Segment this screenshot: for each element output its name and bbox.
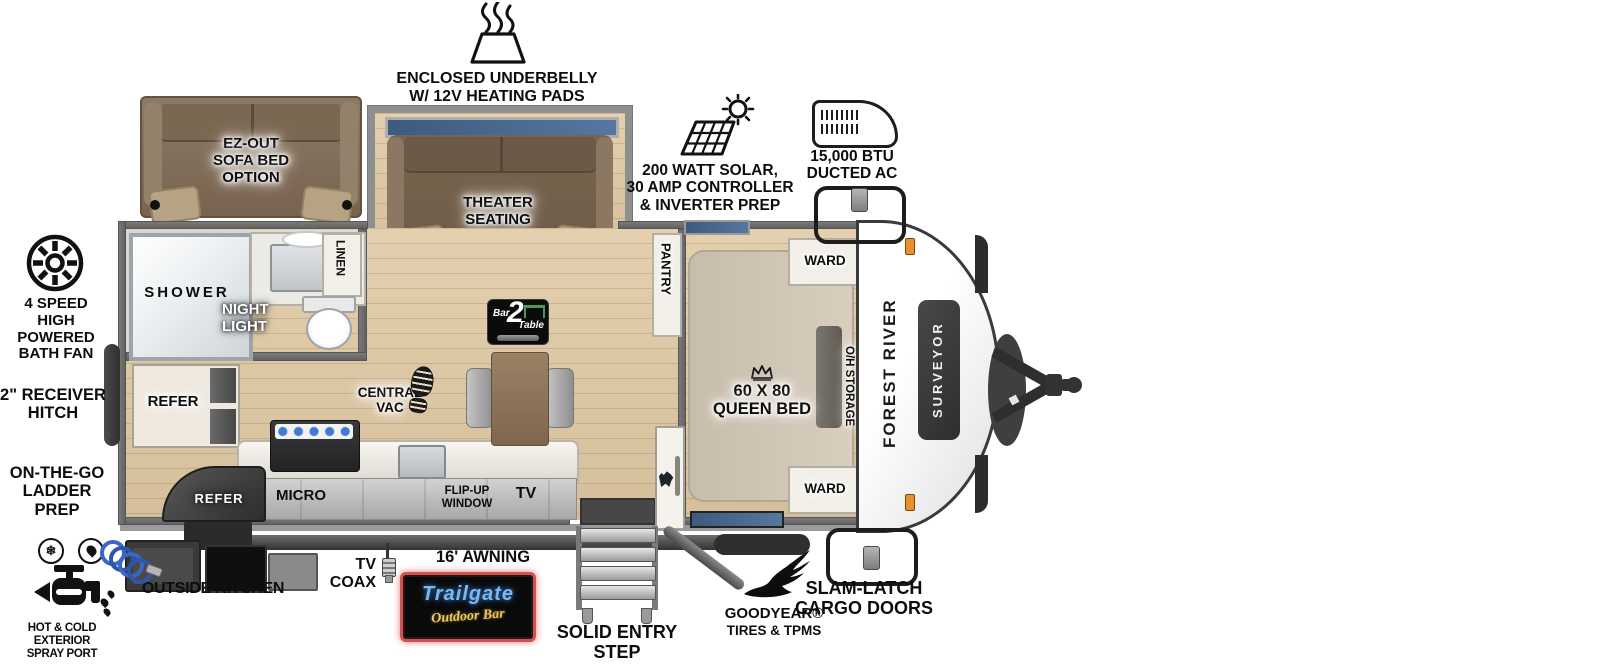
ac-unit-icon (812, 100, 898, 148)
coax-tip (385, 575, 393, 583)
refrigerator: REFER (132, 364, 240, 448)
goodyear-callout: GOODYEAR® TIRES & TPMS (712, 606, 836, 638)
sofa-leg-left (150, 200, 160, 210)
cargo-door-top (814, 186, 906, 244)
entry-door-handle (675, 456, 680, 496)
entry-landing (580, 498, 656, 525)
bath-fan-callout: 4 SPEED HIGH POWERED BATH FAN (0, 296, 112, 363)
refer-exterior-label: REFER (186, 492, 252, 507)
theater-label: THEATER SEATING (435, 195, 561, 229)
tv-label: TV (506, 485, 546, 503)
water-line (56, 589, 82, 595)
queen-bed-label: 60 X 80 QUEEN BED (702, 382, 822, 419)
cold-circle: ❄ (38, 538, 64, 564)
solar-callout: 200 WATT SOLAR, 30 AMP CONTROLLER & INVE… (620, 162, 800, 214)
ladder-prep-callout: ON-THE-GO LADDER PREP (0, 464, 114, 519)
receiver-hitch-callout: 2" RECEIVER HITCH (0, 386, 106, 423)
theater-back-divider (500, 137, 503, 173)
dinette-chair-right (546, 368, 574, 428)
faucet-funnel (34, 582, 50, 602)
cargo-door-bottom-latch (863, 546, 880, 570)
sofa-leg-right (342, 200, 352, 210)
oh-storage-label: O/H STORAGE (842, 324, 855, 448)
a-frame-hitch (990, 344, 1082, 426)
wall-top-left (118, 221, 368, 229)
bedroom-window-top (684, 220, 750, 235)
ac-vent-row-2 (821, 124, 859, 134)
entry-step-callout: SOLID ENTRY STEP (550, 622, 684, 662)
cap-trim-bottom (975, 455, 988, 513)
coax-cable (386, 543, 389, 559)
night-light-label: NIGHT LIGHT (222, 302, 304, 336)
bear-decal (659, 470, 674, 487)
flip-up-window-label: FLIP-UP WINDOW (430, 485, 504, 511)
forest-river-text: FOREST RIVER (880, 290, 899, 456)
sofa-bed-slideout: EZ-OUT SOFA BED OPTION (140, 96, 362, 218)
spray-port-callout: HOT & COLD EXTERIOR SPRAY PORT (6, 622, 118, 661)
trailgate-name: Trailgate (403, 583, 533, 606)
pantry-cabinet: PANTRY (652, 233, 682, 337)
entry-door (655, 426, 685, 530)
shower: SHOWER (129, 233, 253, 361)
step-tread-4 (580, 585, 656, 600)
bar2table-table: Table (518, 320, 544, 331)
faucet-body (52, 578, 86, 605)
shower-label: SHOWER (137, 285, 237, 302)
dinette-chair-left (466, 368, 494, 428)
linen-cabinet: LINEN (322, 233, 362, 297)
kitchen-sink (398, 445, 446, 479)
underbelly-callout: ENCLOSED UNDERBELLY W/ 12V HEATING PADS (372, 70, 622, 106)
drip-2 (106, 589, 116, 599)
drip-1 (99, 597, 110, 608)
bath-fan-icon (26, 234, 84, 292)
marker-light-bottom (905, 494, 915, 511)
tv-coax-callout: TV COAX (314, 556, 376, 592)
step-tread-3 (580, 566, 656, 581)
micro-label: MICRO (270, 488, 332, 505)
marker-light-top (905, 238, 915, 255)
surveyor-panel: SURVEYOR (918, 300, 960, 440)
linen-label: LINEN (333, 240, 346, 276)
awning-callout: 16' AWNING (428, 548, 538, 566)
toilet-bowl (306, 308, 352, 350)
entry-steps (576, 526, 658, 622)
crown-icon (750, 364, 774, 381)
flame-glyph (84, 543, 98, 557)
sofa-option-label: EZ-OUT SOFA BED OPTION (186, 136, 316, 186)
cargo-door-top-latch (851, 188, 868, 212)
ward-bottom-label: WARD (798, 481, 852, 496)
refrigerator-door-panel (210, 368, 236, 403)
refrigerator-door-panel-2 (210, 409, 236, 444)
trailgate-logo: Trailgate Outdoor Bar (400, 572, 536, 642)
step-tread-2 (580, 547, 656, 562)
goodyear-wingfoot-icon (740, 548, 812, 606)
surveyor-text: SURVEYOR (931, 314, 946, 426)
wardrobe-bottom: WARD (788, 466, 862, 514)
floorplan-diagram: EZ-OUT SOFA BED OPTION THEATER SEATING (0, 0, 1600, 671)
bath-sink (270, 244, 330, 292)
bedroom-window-bottom (690, 511, 784, 528)
heating-pads-icon (456, 2, 528, 66)
step-tread-1 (580, 528, 656, 543)
water-hose-coil (100, 538, 170, 583)
dinette-table (491, 352, 549, 446)
drip-3 (102, 607, 112, 617)
pantry-label: PANTRY (658, 243, 673, 295)
refer-label: REFER (136, 394, 210, 411)
cap-trim-top (975, 235, 988, 293)
trailgate-sub: Outdoor Bar (403, 604, 534, 629)
faucet-nozzle (91, 590, 100, 603)
wardrobe-top: WARD (788, 238, 862, 286)
ac-callout: 15,000 BTU DUCTED AC (798, 148, 906, 183)
solar-icon (676, 94, 756, 160)
cooktop (270, 420, 360, 472)
ward-top-label: WARD (798, 253, 852, 268)
bar2table-banner (497, 335, 539, 341)
bar2table-logo: Bar 2 Table (487, 299, 549, 345)
bar2table-green-icon (524, 305, 545, 318)
ac-vent-row-1 (821, 110, 859, 120)
cooktop-burners (275, 424, 353, 439)
coax-connector-icon (380, 543, 396, 585)
